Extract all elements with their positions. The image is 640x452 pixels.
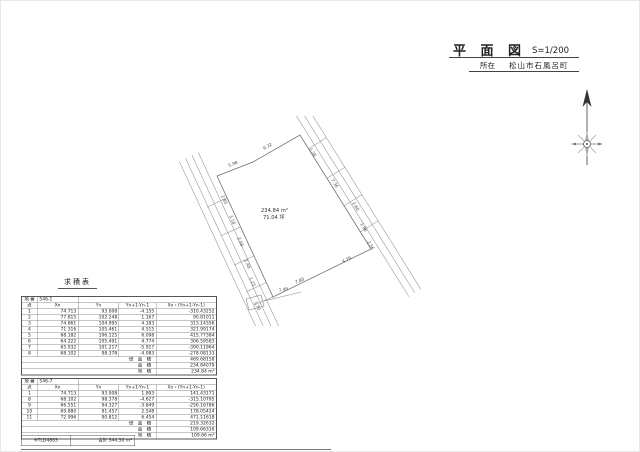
location-label: 所在: [480, 60, 495, 71]
dimension-label: 4.79: [341, 255, 352, 265]
dimension-label: 5.98: [228, 160, 239, 169]
area-table-546-7: 地 番546-7点XnYnYn+1-Yn-1Xn・(Yn+1-Yn-1)174.…: [21, 378, 217, 440]
location-underline: [469, 71, 579, 72]
scale-label: S=1/200: [532, 46, 569, 56]
dimension-label: 1.15: [247, 276, 257, 287]
coordinate-table: 地 番546-7点XnYnYn+1-Yn-1Xn・(Yn+1-Yn-1)174.…: [21, 378, 217, 440]
footer-rule: [21, 449, 331, 450]
dimension-label: 7.49: [278, 286, 289, 294]
title-underline: [449, 57, 579, 58]
tables-title: 求積表: [58, 277, 97, 289]
drawing-code: ※TLD4863: [22, 436, 71, 446]
coordinate-table: 地 番546-1点XnYnYn+1-Yn-1Xn・(Yn+1-Yn-1)174.…: [21, 296, 217, 376]
parcel-boundary: [217, 135, 371, 297]
dimension-label: 9.32: [262, 142, 274, 152]
area-table-546-1: 地 番546-1点XnYnYn+1-Yn-1Xn・(Yn+1-Yn-1)174.…: [21, 296, 217, 376]
location-value: 松山市石風呂町: [509, 60, 569, 71]
dimension-label: 2.60: [350, 201, 360, 213]
dimension-labels: 5.989.321.267.362.601.862.564.797.802.85…: [219, 142, 375, 312]
plan-sheet: 平 面 図 S=1/200 所在 松山市石風呂町: [0, 0, 640, 452]
dimension-label: 2.56: [365, 240, 375, 252]
total-area: 合計 344.50 m²: [71, 436, 135, 446]
dimension-label: 1.26: [307, 147, 317, 159]
dimension-label: 7.80: [294, 276, 305, 286]
footer-box: ※TLD4863 合計 344.50 m²: [21, 435, 135, 446]
area-label-tsubo: 71.04 坪: [263, 213, 285, 221]
dimension-label: 2.48: [242, 258, 252, 269]
summary-row: 地 積234.84 m²: [22, 369, 217, 375]
compass-north-arrow-icon: [569, 87, 605, 167]
dimension-label: 2.08: [235, 236, 245, 247]
area-label-m2: 234.84 m²: [261, 208, 288, 214]
plot-drawing: 234.84 m² 71.04 坪 5.989.321.267.362.601.…: [151, 116, 481, 326]
dimension-label: 7.36: [329, 178, 339, 190]
